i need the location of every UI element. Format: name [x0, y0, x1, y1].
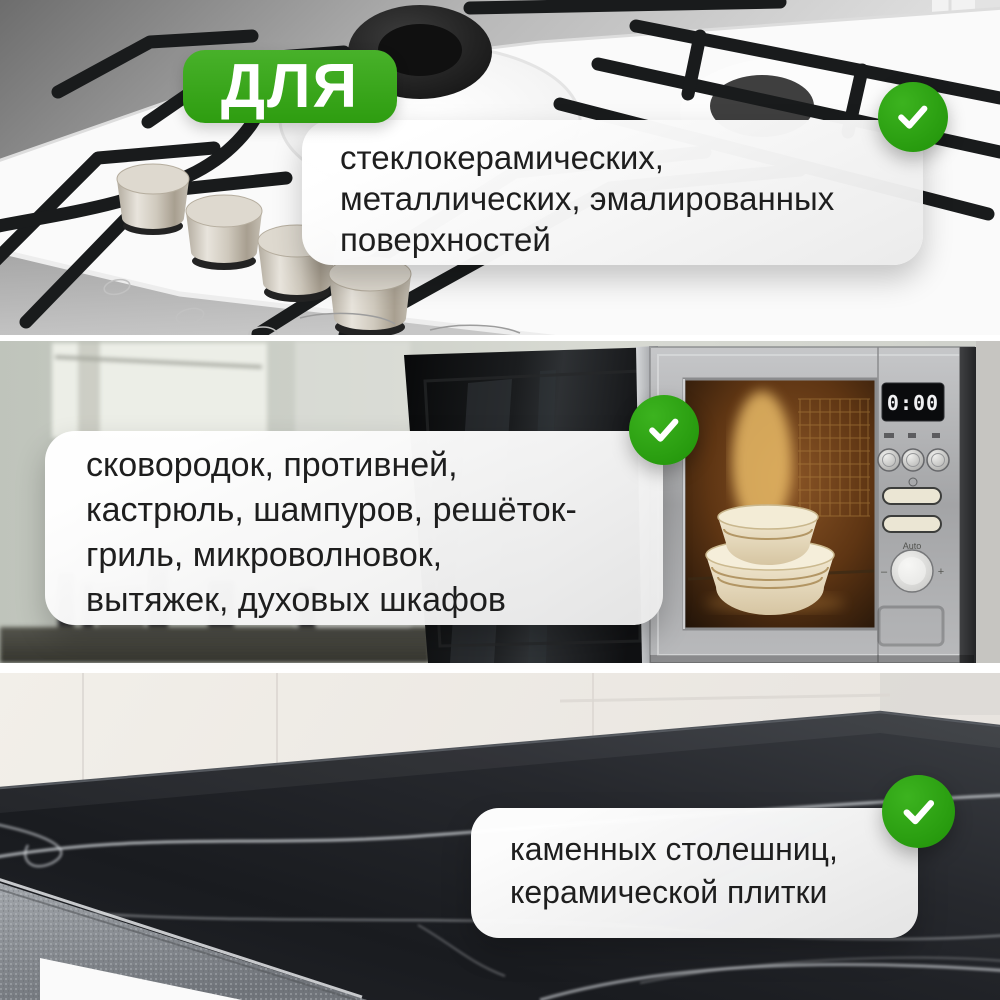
section-divider	[0, 663, 1000, 673]
cookware-card: сковородок, противней, кастрюль, шампуро…	[45, 431, 663, 625]
check-icon	[889, 93, 937, 141]
check-badge	[878, 82, 948, 152]
card-text-line: сковородок, противней,	[86, 443, 645, 488]
check-icon	[894, 787, 944, 837]
for-badge: ДЛЯ	[183, 50, 397, 123]
for-badge-label: ДЛЯ	[221, 51, 359, 122]
counter	[0, 627, 430, 663]
check-icon	[640, 406, 688, 454]
body-side	[960, 347, 976, 663]
card-text-line: вытяжек, духовых шкафов	[86, 578, 645, 623]
card-text-line: каменных столешниц,	[510, 828, 900, 871]
cleaning-product-infographic: 0:00 Auto – +	[0, 0, 1000, 1000]
bowls	[706, 505, 834, 615]
card-text-line: поверхностей	[340, 219, 903, 260]
check-badge	[629, 395, 699, 465]
countertop-card: каменных столешниц, керамической плитки	[471, 808, 918, 938]
card-text-line: стеклокерамических,	[340, 137, 903, 178]
dial-plus: +	[938, 566, 944, 578]
knob	[117, 164, 189, 194]
stove-surfaces-card: стеклокерамических, металлических, эмали…	[302, 120, 923, 265]
card-text-line: кастрюль, шампуров, решёток-	[86, 488, 645, 533]
round-buttons[interactable]	[878, 449, 949, 471]
pill-button[interactable]	[883, 488, 941, 504]
door-open-button[interactable]	[879, 607, 943, 645]
card-text-line: гриль, микроволновок,	[86, 533, 645, 578]
card-text-line: керамической плитки	[510, 871, 900, 914]
section-divider	[0, 335, 1000, 341]
pill-button[interactable]	[883, 516, 941, 532]
check-badge	[882, 775, 955, 848]
dial-minus: –	[881, 566, 888, 578]
card-text-line: металлических, эмалированных	[340, 178, 903, 219]
display-time: 0:00	[887, 391, 939, 415]
knob	[186, 195, 262, 227]
